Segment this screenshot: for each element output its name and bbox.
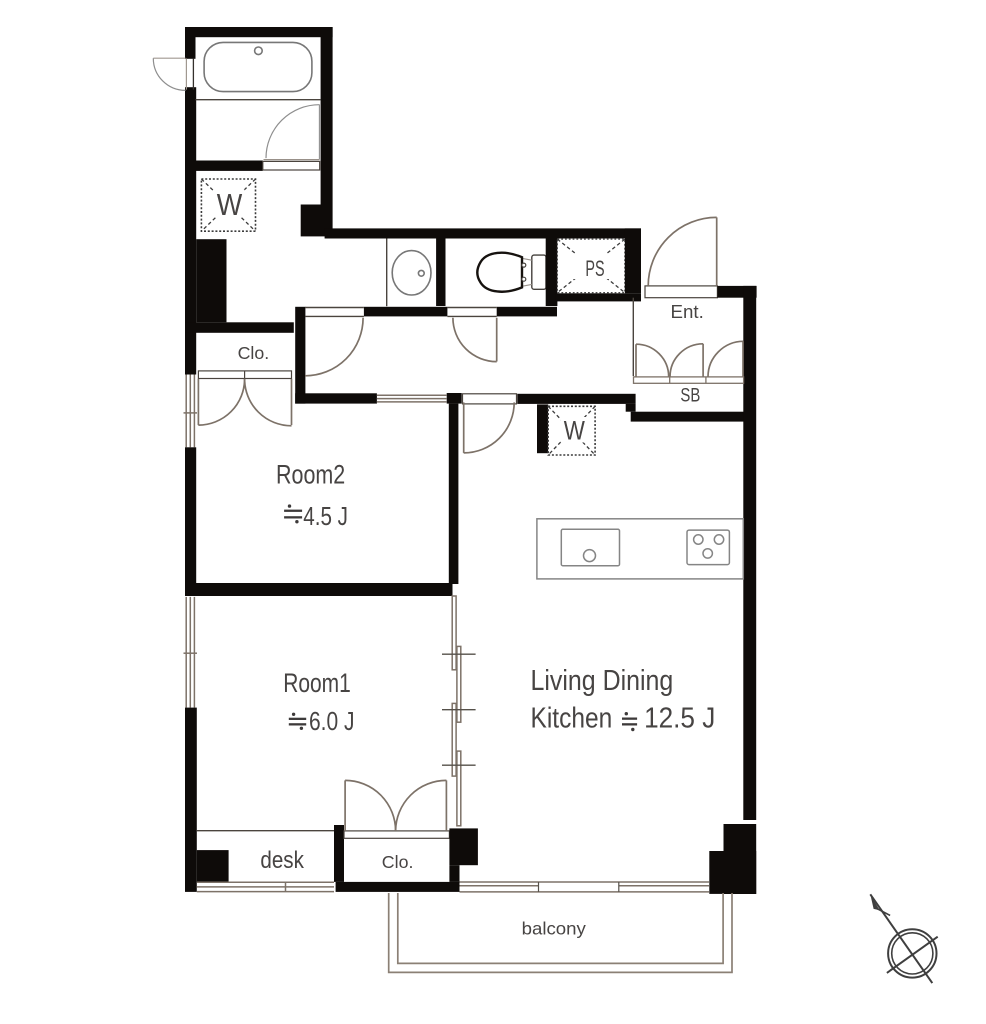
svg-text:SB: SB [680,386,700,407]
svg-text:12.5 J: 12.5 J [644,703,715,735]
svg-text:6.0 J: 6.0 J [309,706,355,736]
svg-text:Clo.: Clo. [238,343,270,363]
svg-text:PS: PS [585,256,604,281]
svg-text:Clo.: Clo. [382,852,414,872]
svg-text:Living Dining: Living Dining [531,665,674,697]
svg-text:balcony: balcony [522,919,587,939]
svg-text:Kitchen: Kitchen [531,703,613,735]
svg-text:desk: desk [260,847,304,874]
svg-text:Room1: Room1 [283,668,351,698]
svg-text:W: W [564,416,586,446]
svg-text:Ent.: Ent. [671,302,704,322]
svg-text:Room2: Room2 [276,460,345,490]
svg-text:4.5 J: 4.5 J [303,501,348,531]
svg-text:W: W [217,188,243,222]
